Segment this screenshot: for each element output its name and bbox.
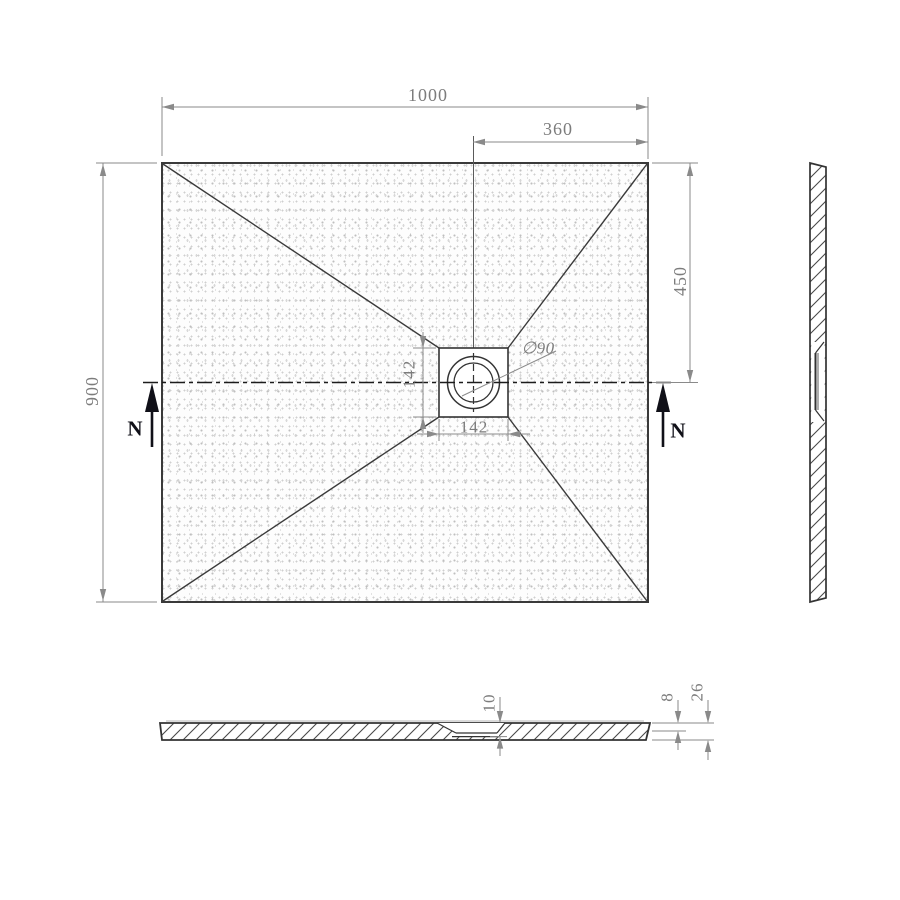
dim-edge-thickness-label: 8 [659, 692, 676, 702]
section-marker-left: N [127, 419, 142, 440]
drawing-linework [0, 0, 900, 900]
dim-drain-diameter-label: ∅90 [521, 340, 554, 357]
dim-plan-height-label: 900 [83, 376, 101, 406]
dim-drain-offset-x-label: 360 [543, 120, 573, 138]
dim-recess-depth-label: 10 [481, 694, 498, 713]
dim-drain-width-label: 142 [460, 419, 489, 436]
n-arrow-right [656, 383, 670, 447]
section-marker-right: N [670, 421, 685, 442]
dim-plan-width-label: 1000 [408, 86, 448, 104]
dimension-lines [96, 97, 698, 602]
side-view [810, 163, 826, 602]
section-outline [160, 723, 650, 740]
drawing-sheet: 1000 360 450 900 142 142 ∅90 N N 10 8 26 [0, 0, 900, 900]
dimension-arrowheads [100, 104, 693, 601]
dim-drain-offset-y-label: 450 [671, 266, 689, 296]
dim-total-thickness-label: 26 [689, 683, 706, 702]
section-view [160, 697, 714, 760]
n-arrow-left [145, 383, 159, 447]
dim-drain-height-label: 142 [401, 360, 418, 389]
